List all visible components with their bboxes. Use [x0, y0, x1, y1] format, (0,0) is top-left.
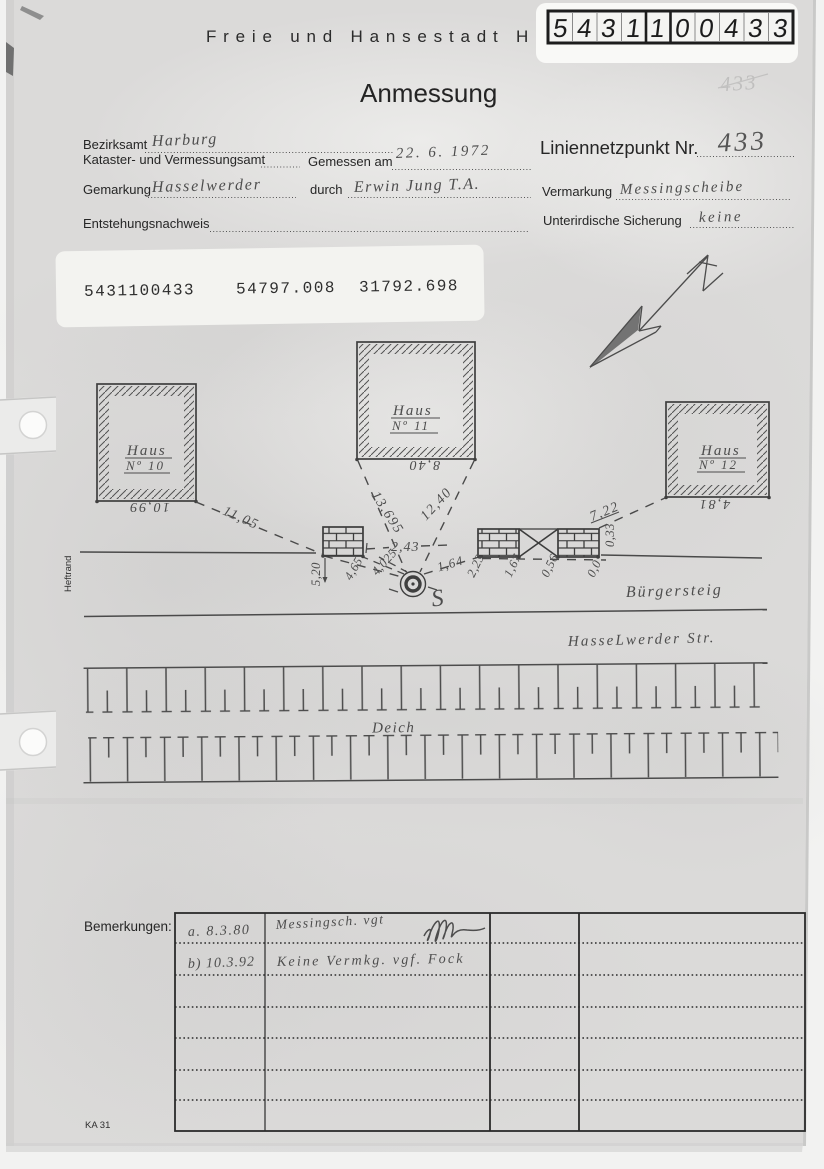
svg-text:Entstehungsnachweis: Entstehungsnachweis: [83, 216, 210, 231]
svg-text:8,40: 8,40: [408, 457, 441, 472]
svg-text:31792.698: 31792.698: [359, 277, 459, 297]
svg-text:b) 10.3.92: b) 10.3.92: [188, 955, 256, 972]
svg-text:Unterirdische Sicherung: Unterirdische Sicherung: [543, 213, 682, 228]
svg-text:Nº 10: Nº 10: [125, 458, 165, 473]
svg-text:Bezirksamt: Bezirksamt: [83, 137, 148, 152]
svg-text:Vermarkung: Vermarkung: [542, 184, 612, 199]
svg-text:5,20: 5,20: [309, 562, 323, 586]
svg-text:Heftrand: Heftrand: [63, 556, 74, 592]
svg-text:Freie und Hansestadt H: Freie und Hansestadt H: [206, 27, 535, 46]
svg-text:Hasselwerder: Hasselwerder: [151, 176, 262, 196]
svg-text:Nº 11: Nº 11: [391, 418, 430, 433]
svg-text:keine: keine: [699, 209, 744, 226]
svg-text:4,81: 4,81: [698, 496, 731, 511]
svg-text:Anmessung: Anmessung: [360, 78, 497, 108]
svg-text:Bemerkungen:: Bemerkungen:: [84, 919, 172, 934]
svg-text:22. 6. 1972: 22. 6. 1972: [396, 143, 492, 162]
svg-text:Deich: Deich: [371, 720, 415, 736]
svg-text:Gemarkung: Gemarkung: [83, 182, 151, 197]
svg-text:Messingscheibe: Messingscheibe: [619, 179, 745, 198]
svg-text:433: 433: [717, 125, 768, 158]
svg-text:Gemessen am: Gemessen am: [308, 154, 393, 169]
svg-text:Liniennetzpunkt Nr.: Liniennetzpunkt Nr.: [540, 137, 698, 158]
svg-text:KA 31: KA 31: [85, 1120, 110, 1131]
svg-text:433: 433: [719, 70, 758, 97]
svg-text:10,99: 10,99: [128, 499, 170, 514]
svg-text:Bürgersteig: Bürgersteig: [626, 581, 723, 601]
svg-text:5431100433: 5431100433: [84, 281, 195, 301]
svg-text:Haus: Haus: [126, 443, 167, 459]
svg-text:Harburg: Harburg: [151, 131, 218, 150]
svg-text:Haus: Haus: [392, 403, 433, 419]
svg-text:Kataster- und Vermessungsamt: Kataster- und Vermessungsamt: [83, 152, 265, 167]
svg-text:Erwin Jung T.A.: Erwin Jung T.A.: [353, 176, 481, 196]
svg-text:durch: durch: [310, 182, 343, 197]
svg-text:a. 8.3.80: a. 8.3.80: [188, 923, 251, 940]
svg-text:0,33: 0,33: [603, 523, 617, 547]
svg-text:Nº 12: Nº 12: [698, 457, 738, 472]
svg-text:54797.008: 54797.008: [236, 279, 336, 299]
